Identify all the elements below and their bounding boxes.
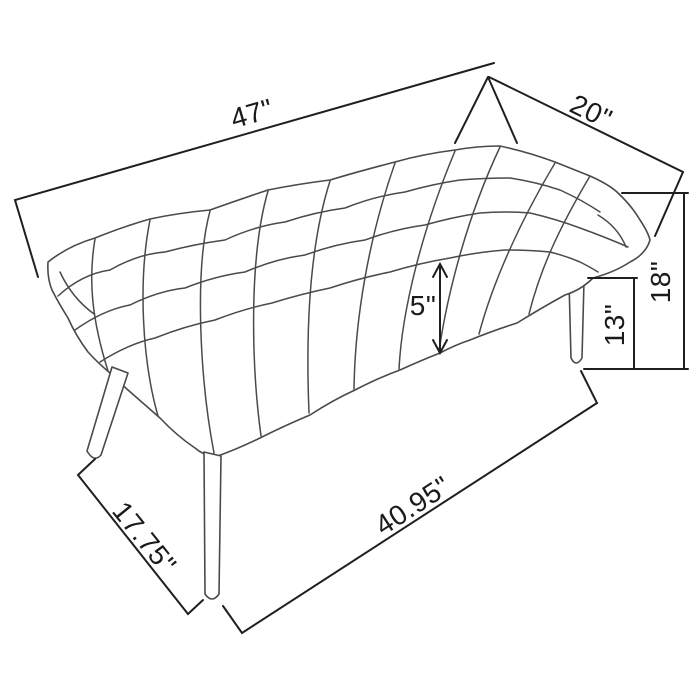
center-front-leg xyxy=(204,452,221,599)
dimension-label-seat-thickness: 5" xyxy=(410,290,437,322)
dimension-label-overall-height: 18" xyxy=(645,261,677,304)
front-left-leg xyxy=(87,367,128,458)
diagram-canvas: 47" 20" 18" 13" 5" 17.75" 40.95" xyxy=(0,0,700,700)
dimension-label-leg-height: 13" xyxy=(599,304,631,347)
